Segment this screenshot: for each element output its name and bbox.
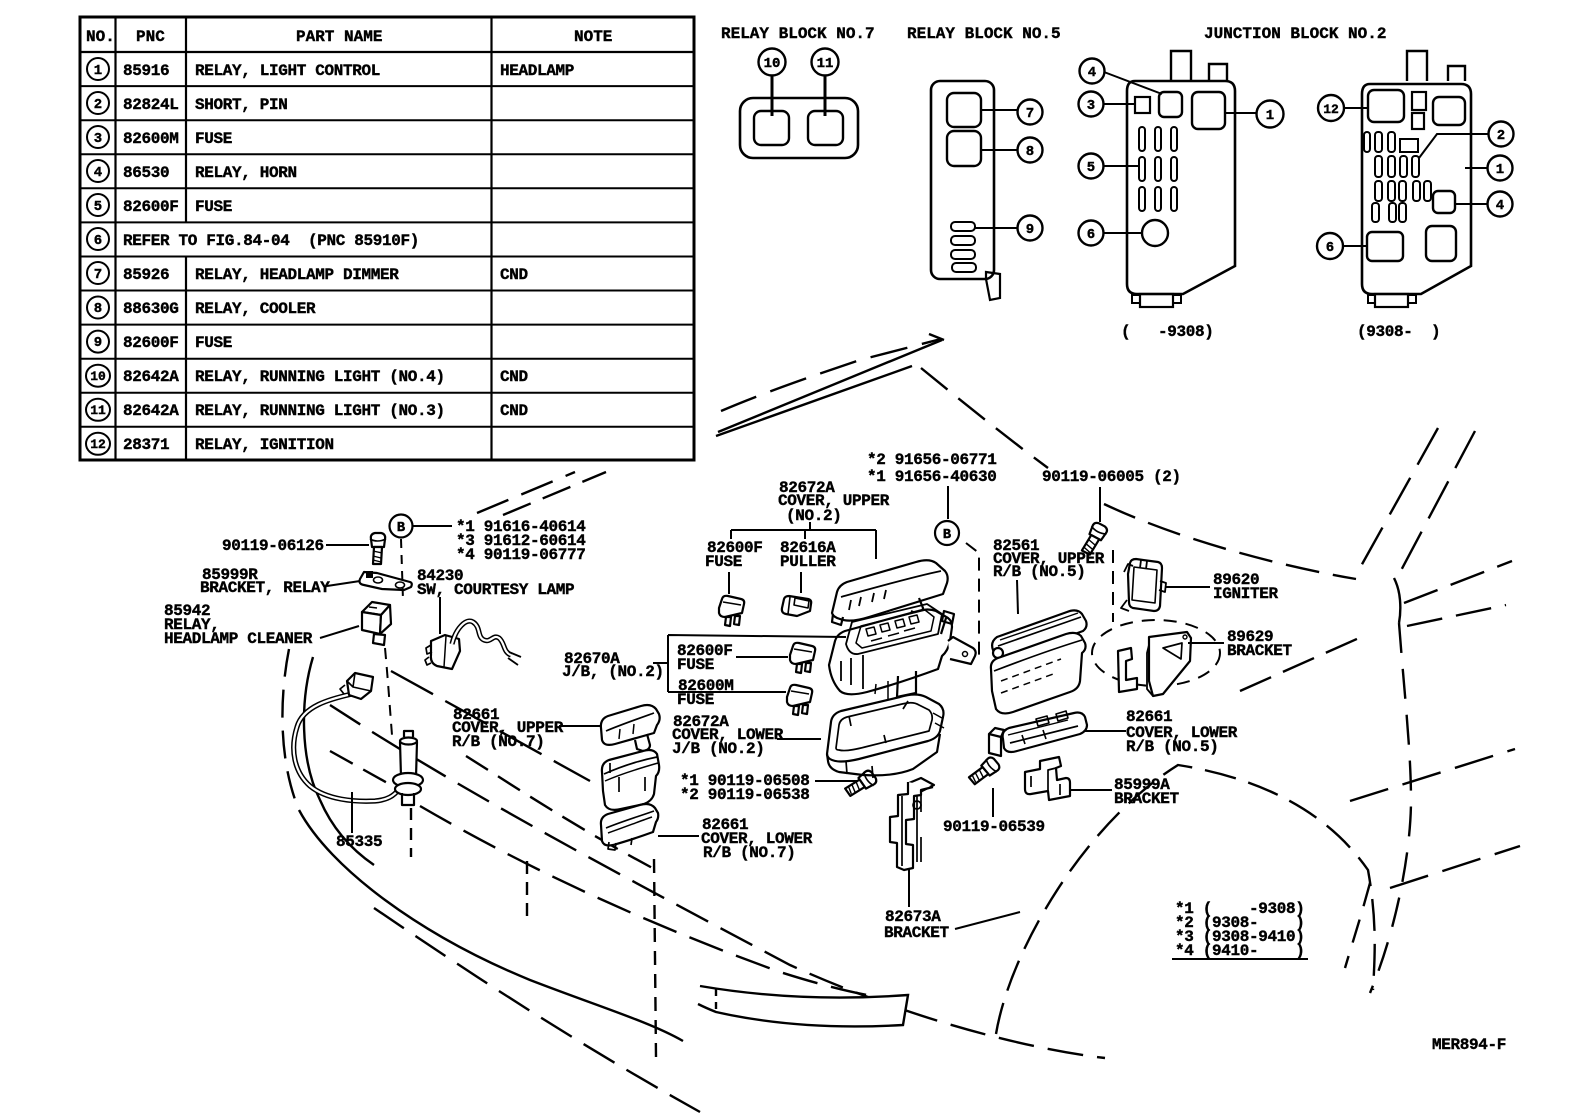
svg-text:JUNCTION BLOCK NO.2: JUNCTION BLOCK NO.2 [1204, 25, 1386, 43]
svg-text:7: 7 [94, 267, 102, 283]
svg-text:11: 11 [817, 56, 834, 72]
svg-text:9: 9 [1026, 222, 1034, 238]
svg-text:8: 8 [1026, 144, 1034, 160]
svg-text:BRACKET, RELAY: BRACKET, RELAY [200, 579, 330, 597]
svg-text:*1 91656-40630: *1 91656-40630 [867, 468, 997, 486]
svg-text:1: 1 [94, 63, 102, 79]
svg-text:*4 (9410- ): *4 (9410- ) [1175, 942, 1305, 960]
svg-text:IGNITER: IGNITER [1213, 585, 1279, 603]
svg-text:85916: 85916 [123, 62, 169, 80]
svg-text:RELAY BLOCK NO.5: RELAY BLOCK NO.5 [907, 25, 1061, 43]
svg-text:R/B (NO.5): R/B (NO.5) [993, 563, 1086, 581]
svg-text:82600F: 82600F [123, 198, 179, 216]
svg-text:REFER TO FIG.84-04 (PNC 85910: REFER TO FIG.84-04 (PNC 85910F) [123, 232, 419, 250]
svg-text:82600F: 82600F [123, 334, 179, 352]
svg-text:11: 11 [90, 403, 106, 418]
svg-text:BRACKET: BRACKET [884, 924, 950, 942]
svg-text:*4 90119-06777: *4 90119-06777 [456, 546, 586, 564]
svg-text:4: 4 [1496, 198, 1504, 214]
svg-text:FUSE: FUSE [195, 334, 232, 352]
svg-text:RELAY, RUNNING LIGHT (NO.3): RELAY, RUNNING LIGHT (NO.3) [195, 402, 445, 420]
svg-text:1: 1 [1266, 108, 1274, 124]
svg-text:FUSE: FUSE [677, 656, 714, 674]
svg-text:PART NAME: PART NAME [296, 28, 382, 46]
svg-text:CND: CND [500, 266, 528, 284]
svg-text:FUSE: FUSE [195, 198, 232, 216]
svg-text:6: 6 [1326, 240, 1334, 256]
svg-text:HEADLAMP CLEANER: HEADLAMP CLEANER [164, 630, 313, 648]
svg-text:PNC: PNC [136, 28, 165, 46]
svg-text:RELAY, IGNITION: RELAY, IGNITION [195, 436, 334, 454]
svg-text:1: 1 [1496, 162, 1504, 178]
svg-text:6: 6 [1087, 227, 1095, 243]
svg-text:MER894-F: MER894-F [1432, 1036, 1506, 1054]
svg-text:10: 10 [764, 56, 781, 72]
svg-text:NOTE: NOTE [574, 28, 612, 46]
svg-text:5: 5 [1087, 160, 1095, 176]
svg-text:8: 8 [94, 301, 102, 317]
svg-text:(NO.2): (NO.2) [786, 507, 842, 525]
svg-text:HEADLAMP: HEADLAMP [500, 62, 574, 80]
svg-text:82642A: 82642A [123, 368, 179, 386]
svg-text:12: 12 [1323, 102, 1339, 117]
svg-text:85926: 85926 [123, 266, 169, 284]
svg-text:4: 4 [1088, 65, 1096, 81]
svg-text:RELAY, HEADLAMP DIMMER: RELAY, HEADLAMP DIMMER [195, 266, 399, 284]
svg-text:88630G: 88630G [123, 300, 179, 318]
svg-text:2: 2 [94, 97, 102, 113]
svg-text:RELAY, RUNNING LIGHT (NO.4): RELAY, RUNNING LIGHT (NO.4) [195, 368, 445, 386]
svg-text:FUSE: FUSE [705, 553, 742, 571]
svg-text:90119-06539: 90119-06539 [943, 818, 1045, 836]
svg-text:SHORT, PIN: SHORT, PIN [195, 96, 288, 114]
svg-text:9: 9 [94, 335, 102, 351]
svg-text:B: B [943, 527, 952, 543]
svg-text:PULLER: PULLER [780, 553, 836, 571]
svg-text:BRACKET: BRACKET [1227, 642, 1293, 660]
svg-text:CND: CND [500, 402, 528, 420]
svg-text:RELAY, COOLER: RELAY, COOLER [195, 300, 316, 318]
svg-text:SW, COURTESY LAMP: SW, COURTESY LAMP [417, 581, 574, 599]
svg-text:12: 12 [90, 437, 106, 452]
svg-text:BRACKET: BRACKET [1114, 790, 1180, 808]
svg-text:86530: 86530 [123, 164, 169, 182]
svg-text:28371: 28371 [123, 436, 169, 454]
svg-text:FUSE: FUSE [677, 691, 714, 709]
svg-text:90119-06126: 90119-06126 [222, 537, 324, 555]
svg-text:10: 10 [90, 369, 106, 384]
svg-text:CND: CND [500, 368, 528, 386]
svg-text:90119-06005 (2): 90119-06005 (2) [1042, 468, 1181, 486]
svg-text:FUSE: FUSE [195, 130, 232, 148]
svg-text:( -9308): ( -9308) [1121, 323, 1214, 341]
svg-text:82824L: 82824L [123, 96, 179, 114]
svg-text:*2 90119-06538: *2 90119-06538 [680, 786, 810, 804]
svg-text:R/B (NO.7): R/B (NO.7) [703, 844, 796, 862]
svg-text:B: B [397, 520, 406, 536]
svg-text:5: 5 [94, 199, 102, 215]
svg-text:82642A: 82642A [123, 402, 179, 420]
svg-text:RELAY BLOCK NO.7: RELAY BLOCK NO.7 [721, 25, 875, 43]
svg-text:NO.: NO. [86, 28, 115, 46]
svg-text:7: 7 [1026, 106, 1034, 122]
svg-text:R/B (NO.5): R/B (NO.5) [1126, 738, 1219, 756]
svg-text:3: 3 [1087, 98, 1095, 114]
svg-text:(9308- ): (9308- ) [1357, 323, 1440, 341]
svg-text:R/B (NO.7): R/B (NO.7) [452, 733, 545, 751]
svg-text:4: 4 [94, 165, 102, 181]
svg-text:*2 91656-06771: *2 91656-06771 [867, 451, 997, 469]
svg-text:3: 3 [94, 131, 102, 147]
svg-text:85335: 85335 [336, 833, 382, 851]
svg-text:J/B, (NO.2): J/B, (NO.2) [562, 663, 664, 681]
svg-text:2: 2 [1497, 128, 1505, 144]
svg-text:6: 6 [94, 233, 102, 249]
svg-text:RELAY, LIGHT CONTROL: RELAY, LIGHT CONTROL [195, 62, 380, 80]
svg-text:J/B (NO.2): J/B (NO.2) [672, 740, 765, 758]
svg-text:82600M: 82600M [123, 130, 179, 148]
svg-text:RELAY, HORN: RELAY, HORN [195, 164, 297, 182]
